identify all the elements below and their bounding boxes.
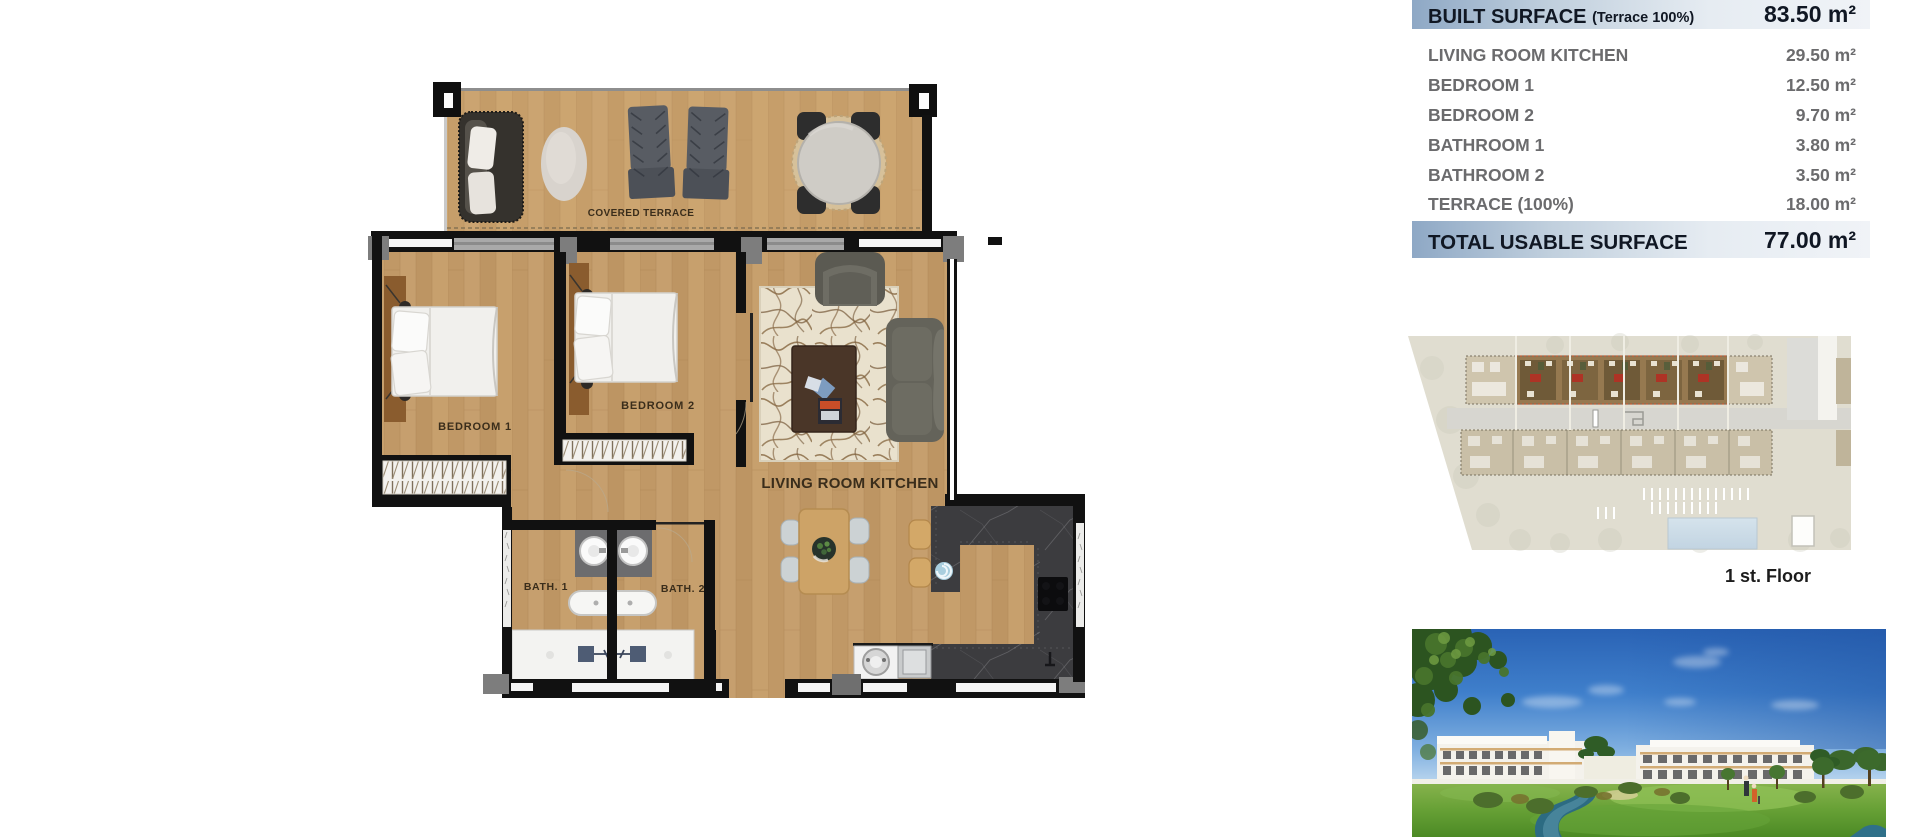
svg-text:BATHROOM 2: BATHROOM 2 <box>1428 165 1545 185</box>
svg-text:BATHROOM 1: BATHROOM 1 <box>1428 135 1545 155</box>
svg-text:LIVING ROOM KITCHEN: LIVING ROOM KITCHEN <box>761 475 938 492</box>
svg-text:1 st. Floor: 1 st. Floor <box>1725 566 1811 586</box>
svg-text:12.50 m²: 12.50 m² <box>1786 75 1856 95</box>
svg-text:LIVING ROOM KITCHEN: LIVING ROOM KITCHEN <box>1428 45 1628 65</box>
svg-text:29.50 m²: 29.50 m² <box>1786 45 1856 65</box>
svg-text:COVERED TERRACE: COVERED TERRACE <box>588 208 695 219</box>
svg-text:3.50 m²: 3.50 m² <box>1796 165 1856 185</box>
svg-text:18.00 m²: 18.00 m² <box>1786 194 1856 214</box>
svg-text:BEDROOM 1: BEDROOM 1 <box>1428 75 1534 95</box>
svg-text:BEDROOM 2: BEDROOM 2 <box>1428 105 1534 125</box>
svg-text:BATH. 1: BATH. 1 <box>524 581 568 593</box>
svg-text:BUILT SURFACE (Terrace 100%): BUILT SURFACE (Terrace 100%) <box>1428 6 1694 28</box>
svg-text:BEDROOM 1: BEDROOM 1 <box>438 421 512 433</box>
svg-text:9.70 m²: 9.70 m² <box>1796 105 1856 125</box>
svg-text:77.00 m²: 77.00 m² <box>1764 227 1856 253</box>
svg-text:BEDROOM 2: BEDROOM 2 <box>621 400 695 412</box>
svg-text:TERRACE (100%): TERRACE (100%) <box>1428 194 1574 214</box>
svg-text:BATH. 2: BATH. 2 <box>661 583 705 595</box>
svg-text:3.80 m²: 3.80 m² <box>1796 135 1856 155</box>
svg-text:TOTAL USABLE SURFACE: TOTAL USABLE SURFACE <box>1428 231 1688 254</box>
svg-text:83.50 m²: 83.50 m² <box>1764 1 1856 27</box>
